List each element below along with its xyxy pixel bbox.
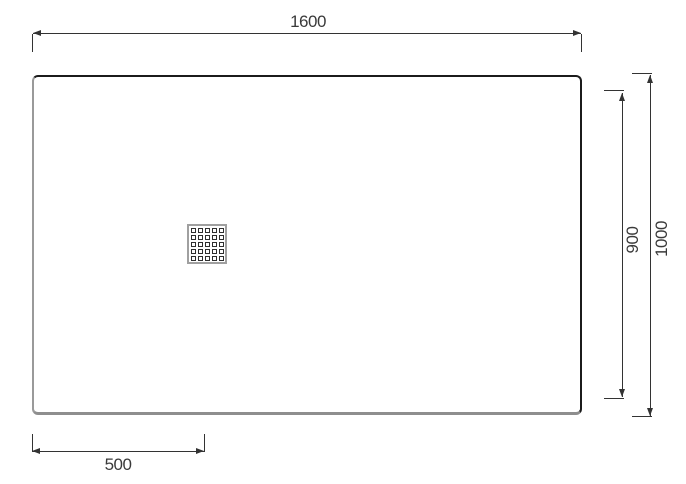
dim-line-width [33, 33, 581, 34]
extension-tick-top [604, 90, 624, 91]
drain-dot [198, 242, 203, 247]
drain-dot [198, 228, 203, 233]
drain-dot [205, 242, 210, 247]
dimension-drain-offset-label: 500 [88, 456, 148, 474]
drain-grate-grid [191, 228, 224, 261]
arrowhead-right-icon [573, 30, 581, 36]
extension-tick-bottom [632, 416, 652, 417]
technical-drawing-canvas: 1600 500 900 1000 [0, 0, 686, 484]
arrowhead-down-icon [619, 389, 625, 397]
drain-dot [198, 249, 203, 254]
arrowhead-down-icon [647, 408, 653, 416]
drain-dot [219, 235, 224, 240]
drain-dot [212, 249, 217, 254]
arrowhead-up-icon [647, 75, 653, 83]
drain-dot [212, 242, 217, 247]
drain-dot [212, 235, 217, 240]
extension-tick-bottom [604, 398, 624, 399]
arrowhead-left-icon [32, 448, 40, 454]
extension-tick-right [204, 434, 205, 452]
drain-dot [212, 228, 217, 233]
arrowhead-left-icon [33, 30, 41, 36]
dim-line-height [650, 75, 651, 416]
drain-dot [219, 256, 224, 261]
drain-dot [219, 242, 224, 247]
drain-dot [191, 228, 196, 233]
drain-dot [191, 235, 196, 240]
drain-dot [198, 235, 203, 240]
drain-dot [191, 249, 196, 254]
drain-dot [219, 228, 224, 233]
arrowhead-right-icon [196, 448, 204, 454]
drain-dot [198, 256, 203, 261]
drain-dot [191, 256, 196, 261]
drain-dot [219, 249, 224, 254]
drain-dot [212, 256, 217, 261]
dimension-inner-height-label: 900 [624, 210, 642, 270]
extension-tick-left [32, 34, 33, 52]
extension-tick-right [581, 34, 582, 52]
drain-dot [205, 249, 210, 254]
extension-tick-top [632, 73, 652, 74]
drain-dot [191, 242, 196, 247]
drain-dot [205, 235, 210, 240]
drain-grate-icon [187, 224, 227, 264]
dimension-height-label: 1000 [653, 204, 671, 274]
arrowhead-up-icon [619, 93, 625, 101]
dimension-width-label: 1600 [277, 13, 339, 31]
drain-dot [205, 256, 210, 261]
shower-tray-outline [32, 75, 582, 415]
drain-dot [205, 228, 210, 233]
dim-line-drain-offset [32, 451, 205, 452]
